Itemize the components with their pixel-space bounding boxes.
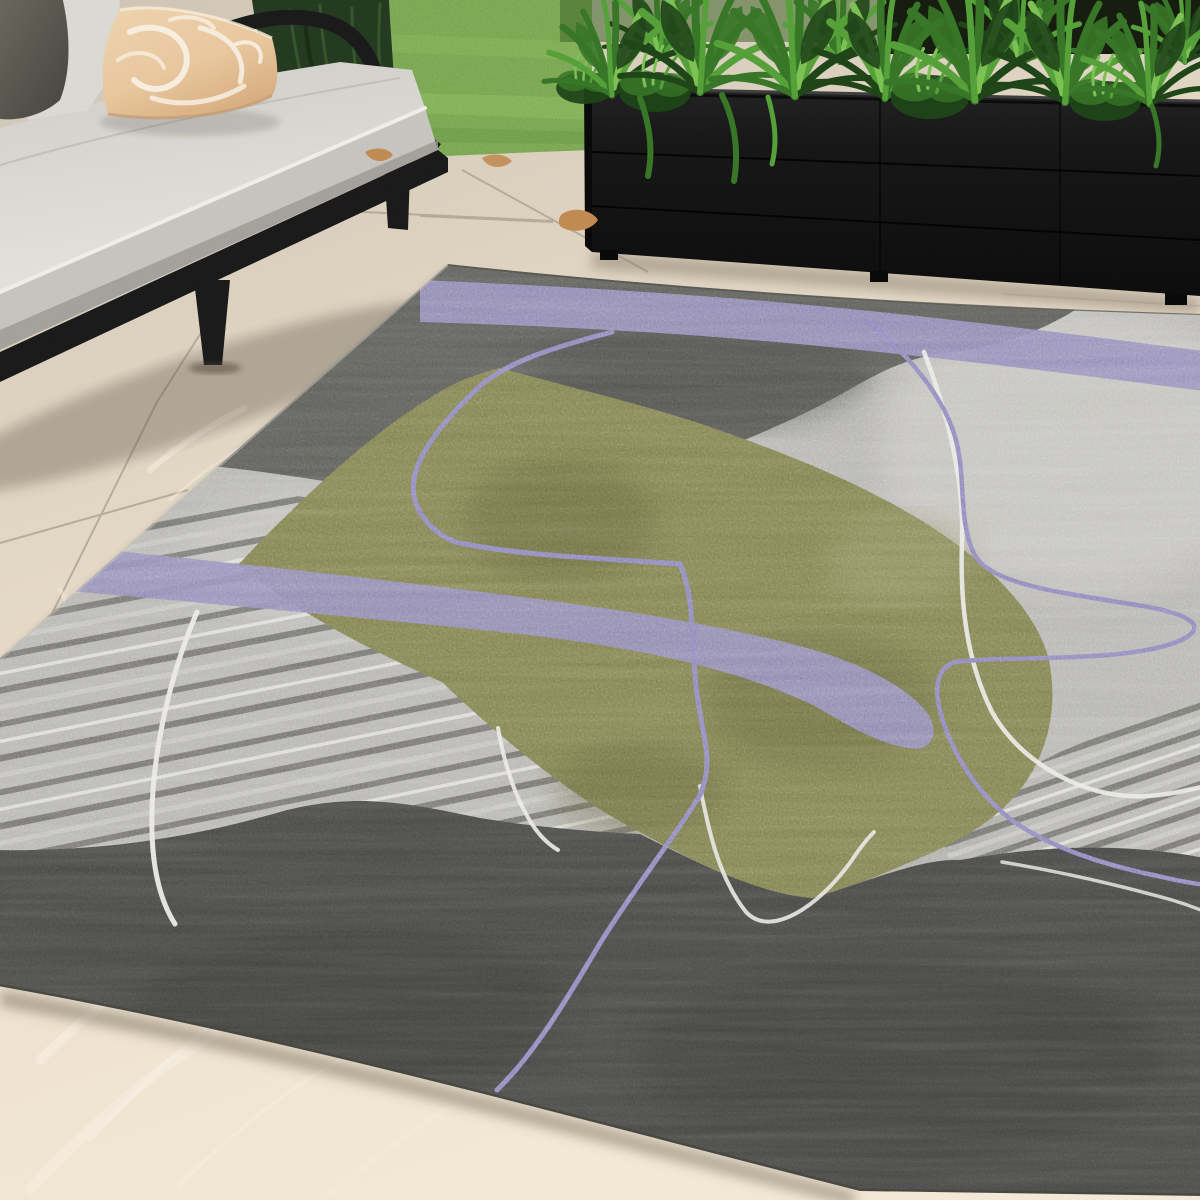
photo-grain-overlay xyxy=(0,0,1200,1200)
patio-scene-photo xyxy=(0,0,1200,1200)
scene-canvas xyxy=(0,0,1200,1200)
